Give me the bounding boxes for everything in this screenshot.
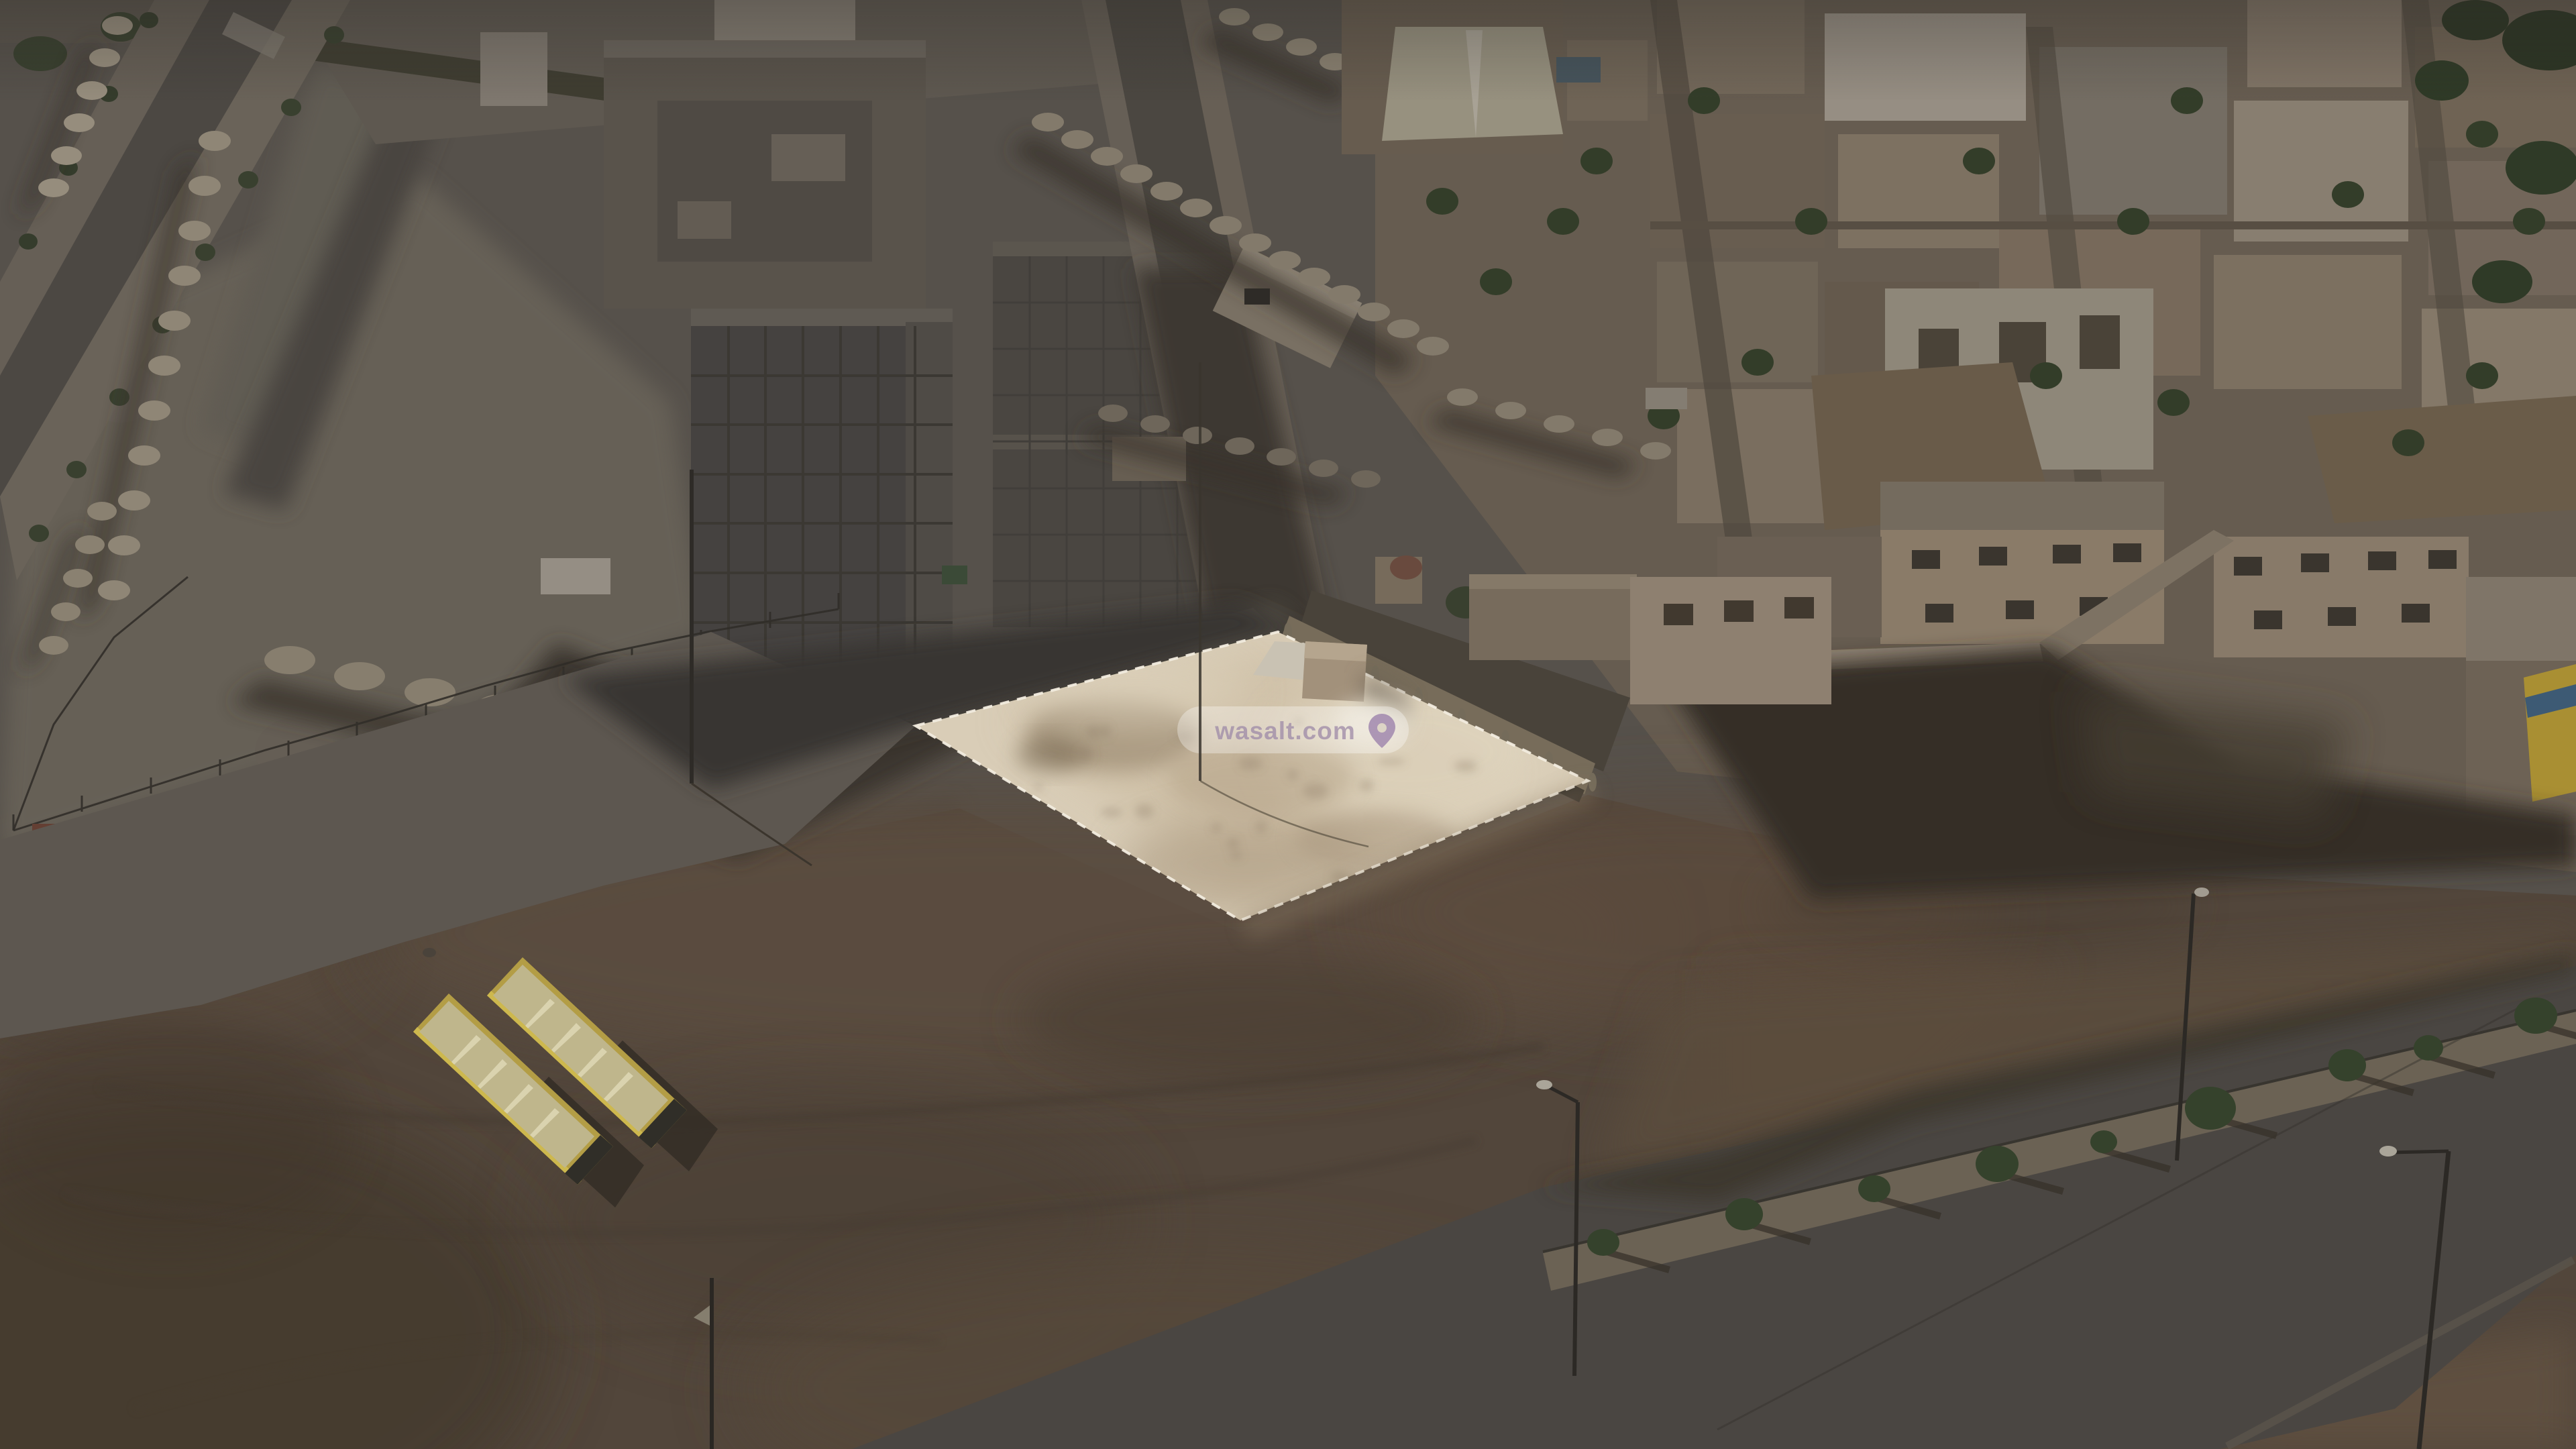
svg-text:wasalt.com: wasalt.com (1214, 717, 1355, 745)
